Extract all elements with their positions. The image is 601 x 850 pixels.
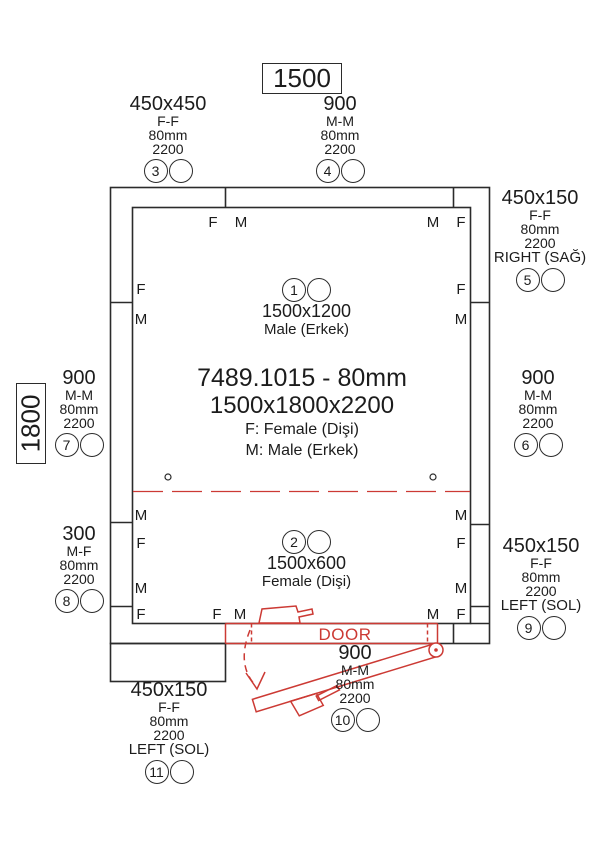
edge-gender-letter: F xyxy=(456,607,465,622)
joint-type-label: F-F xyxy=(104,700,234,714)
callout-11-block: 450x150 F-F 80mm 2200 LEFT (SOL) 11 xyxy=(104,680,234,784)
callout-6-block: 900 M-M 80mm 2200 6 xyxy=(473,368,601,457)
callout-circles: 11 xyxy=(104,760,234,784)
edge-gender-letter: F xyxy=(136,282,145,297)
empty-check-circle xyxy=(356,708,380,732)
callout-number-circle: 3 xyxy=(144,159,168,183)
panel-height-label: 2200 xyxy=(14,572,144,586)
empty-check-circle xyxy=(341,159,365,183)
callout-number-circle: 11 xyxy=(145,760,169,784)
panel-side-label: LEFT (SOL) xyxy=(104,742,234,757)
panel-thickness-label: 80mm xyxy=(103,128,233,142)
vent-symbols xyxy=(165,474,436,480)
edge-gender-letter: M xyxy=(455,581,468,596)
panel-size-label: 900 xyxy=(275,94,405,114)
panel-height-label: 2200 xyxy=(290,691,420,705)
callout-8-block: 300 M-F 80mm 2200 8 xyxy=(14,524,144,613)
callout-circles: 3 xyxy=(103,159,233,183)
callout-circles: 10 xyxy=(290,708,420,732)
width-dimension-box: 1500 xyxy=(262,63,342,94)
empty-check-circle xyxy=(541,268,565,292)
empty-check-circle xyxy=(542,616,566,640)
legend-male: M: Male (Erkek) xyxy=(147,440,457,461)
callout-number-circle: 5 xyxy=(516,268,540,292)
callout-7-block: 900 M-M 80mm 2200 7 xyxy=(14,368,144,457)
vent-circle-icon xyxy=(165,474,171,480)
joint-type-label: M-M xyxy=(290,663,420,677)
callout-number-circle: 7 xyxy=(55,433,79,457)
panel-size-label: 300 xyxy=(14,524,144,544)
panel-height-label: 2200 xyxy=(473,416,601,430)
edge-gender-letter: F xyxy=(212,607,221,622)
edge-gender-letter: M xyxy=(235,215,248,230)
part-code: 7489.1015 - 80mm xyxy=(147,365,457,392)
empty-check-circle xyxy=(80,589,104,613)
panel-thickness-label: 80mm xyxy=(14,402,144,416)
callout-9-block: 450x150 F-F 80mm 2200 LEFT (SOL) 9 xyxy=(476,536,601,640)
callout-3-block: 450x450 F-F 80mm 2200 3 xyxy=(103,94,233,183)
joint-type-label: M-M xyxy=(14,388,144,402)
panel-number-circle: 2 xyxy=(282,530,306,554)
panel-layout-drawing: 1500 1800 7489.1015 - 80mm 1500x1800x220… xyxy=(0,0,601,850)
panel-size-label: 450x450 xyxy=(103,94,233,114)
vent-circle-icon xyxy=(430,474,436,480)
panel-1-circles: 1 xyxy=(226,278,387,302)
panel-2-label-block: 2 1500x600 Female (Dişi) xyxy=(226,527,387,590)
panel-gender-label: Male (Erkek) xyxy=(226,321,387,338)
panel-size-label: 450x150 xyxy=(475,188,601,208)
panel-thickness-label: 80mm xyxy=(14,558,144,572)
panel-number-circle: 1 xyxy=(282,278,306,302)
callout-circles: 5 xyxy=(475,268,601,292)
panel-height-label: 2200 xyxy=(275,142,405,156)
panel-thickness-label: 80mm xyxy=(476,570,601,584)
edge-gender-letter: M xyxy=(427,607,440,622)
joint-type-label: F-F xyxy=(476,556,601,570)
door-swing-arrow-icon xyxy=(246,672,265,689)
edge-gender-letter: M xyxy=(135,508,148,523)
door-handle-icon xyxy=(259,606,313,623)
panel-height-label: 2200 xyxy=(476,584,601,598)
panel-1-label-block: 1 1500x1200 Male (Erkek) xyxy=(226,275,387,338)
panel-thickness-label: 80mm xyxy=(475,222,601,236)
edge-gender-letter: F xyxy=(456,282,465,297)
callout-number-circle: 4 xyxy=(316,159,340,183)
panel-height-label: 2200 xyxy=(475,236,601,250)
joint-type-label: F-F xyxy=(475,208,601,222)
edge-gender-letter: M xyxy=(135,581,148,596)
edge-gender-letter: F xyxy=(208,215,217,230)
callout-circles: 9 xyxy=(476,616,601,640)
door-label: DOOR xyxy=(319,626,372,643)
panel-thickness-label: 80mm xyxy=(473,402,601,416)
panel-size-label: 900 xyxy=(473,368,601,388)
empty-check-circle xyxy=(170,760,194,784)
callout-number-circle: 9 xyxy=(517,616,541,640)
panel-2-circles: 2 xyxy=(226,530,387,554)
callout-5-block: 450x150 F-F 80mm 2200 RIGHT (SAĞ) 5 xyxy=(475,188,601,292)
empty-check-circle xyxy=(80,433,104,457)
empty-check-circle xyxy=(169,159,193,183)
callout-circles: 8 xyxy=(14,589,144,613)
empty-check-circle xyxy=(307,530,331,554)
panel-thickness-label: 80mm xyxy=(104,714,234,728)
joint-type-label: M-F xyxy=(14,544,144,558)
empty-check-circle xyxy=(539,433,563,457)
edge-gender-letter: F xyxy=(136,536,145,551)
joint-type-label: F-F xyxy=(103,114,233,128)
panel-size-label: 450x150 xyxy=(104,680,234,700)
edge-gender-letter: F xyxy=(456,215,465,230)
panel-side-label: RIGHT (SAĞ) xyxy=(475,250,601,265)
panel-size-label: 900 xyxy=(14,368,144,388)
legend-female: F: Female (Dişi) xyxy=(147,419,457,440)
edge-gender-letter: M xyxy=(427,215,440,230)
joint-type-label: M-M xyxy=(275,114,405,128)
bottom-left-panel-box xyxy=(111,644,226,682)
callout-circles: 4 xyxy=(275,159,405,183)
callout-number-circle: 10 xyxy=(331,708,355,732)
edge-gender-letter: M xyxy=(455,312,468,327)
panel-thickness-label: 80mm xyxy=(290,677,420,691)
empty-check-circle xyxy=(307,278,331,302)
callout-circles: 6 xyxy=(473,433,601,457)
callout-10-block: 900 M-M 80mm 2200 10 xyxy=(290,643,420,732)
panel-height-label: 2200 xyxy=(104,728,234,742)
edge-gender-letter: M xyxy=(135,312,148,327)
door-swing-arc xyxy=(244,630,256,686)
edge-gender-letter: F xyxy=(136,607,145,622)
edge-gender-letter: F xyxy=(456,536,465,551)
overall-size: 1500x1800x2200 xyxy=(147,392,457,419)
callout-number-circle: 6 xyxy=(514,433,538,457)
callout-number-circle: 8 xyxy=(55,589,79,613)
panel-gender-label: Female (Dişi) xyxy=(226,573,387,590)
panel-height-label: 2200 xyxy=(14,416,144,430)
panel-height-label: 2200 xyxy=(103,142,233,156)
edge-gender-letter: M xyxy=(234,607,247,622)
title-block: 7489.1015 - 80mm 1500x1800x2200 F: Femal… xyxy=(147,365,457,461)
panel-size-label: 1500x1200 xyxy=(226,302,387,321)
panel-side-label: LEFT (SOL) xyxy=(476,598,601,613)
panel-thickness-label: 80mm xyxy=(275,128,405,142)
panel-size-label: 450x150 xyxy=(476,536,601,556)
edge-gender-letter: M xyxy=(455,508,468,523)
joint-type-label: M-M xyxy=(473,388,601,402)
panel-size-label: 1500x600 xyxy=(226,554,387,573)
width-dimension-value: 1500 xyxy=(273,63,331,94)
callout-circles: 7 xyxy=(14,433,144,457)
callout-4-block: 900 M-M 80mm 2200 4 xyxy=(275,94,405,183)
panel-size-label: 900 xyxy=(290,643,420,663)
